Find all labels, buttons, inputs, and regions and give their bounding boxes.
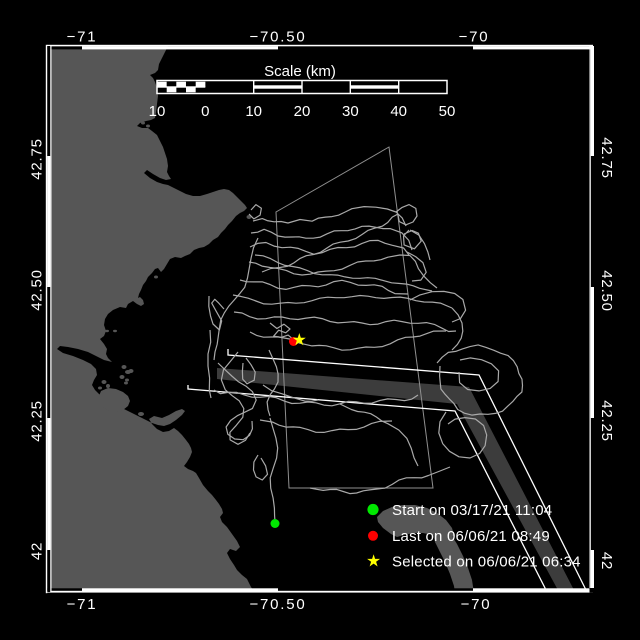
svg-text:−71: −71 — [67, 596, 98, 613]
svg-text:42.75: 42.75 — [29, 138, 46, 180]
svg-text:42.75: 42.75 — [598, 137, 615, 179]
svg-text:20: 20 — [294, 103, 311, 120]
svg-text:10: 10 — [245, 103, 262, 120]
svg-text:30: 30 — [342, 103, 359, 120]
svg-text:10: 10 — [149, 103, 166, 120]
svg-text:−71: −71 — [67, 29, 98, 46]
svg-text:Start on 03/17/21 11:04: Start on 03/17/21 11:04 — [392, 502, 552, 519]
svg-text:40: 40 — [390, 103, 407, 120]
svg-text:−70: −70 — [461, 596, 492, 613]
svg-text:Selected on 06/06/21 06:34: Selected on 06/06/21 06:34 — [392, 554, 581, 571]
svg-text:42.25: 42.25 — [29, 400, 46, 442]
svg-text:0: 0 — [201, 103, 209, 120]
svg-text:−70.50: −70.50 — [249, 596, 306, 613]
svg-text:42.50: 42.50 — [598, 270, 615, 312]
svg-text:42: 42 — [29, 542, 46, 560]
svg-text:−70.50: −70.50 — [249, 29, 306, 46]
svg-text:42: 42 — [598, 552, 615, 570]
svg-text:Last on 06/06/21 08:49: Last on 06/06/21 08:49 — [392, 528, 550, 545]
svg-text:Scale (km): Scale (km) — [264, 63, 336, 80]
svg-text:42.50: 42.50 — [29, 269, 46, 311]
svg-text:42.25: 42.25 — [598, 400, 615, 442]
svg-text:−70: −70 — [459, 29, 490, 46]
svg-text:50: 50 — [439, 103, 456, 120]
